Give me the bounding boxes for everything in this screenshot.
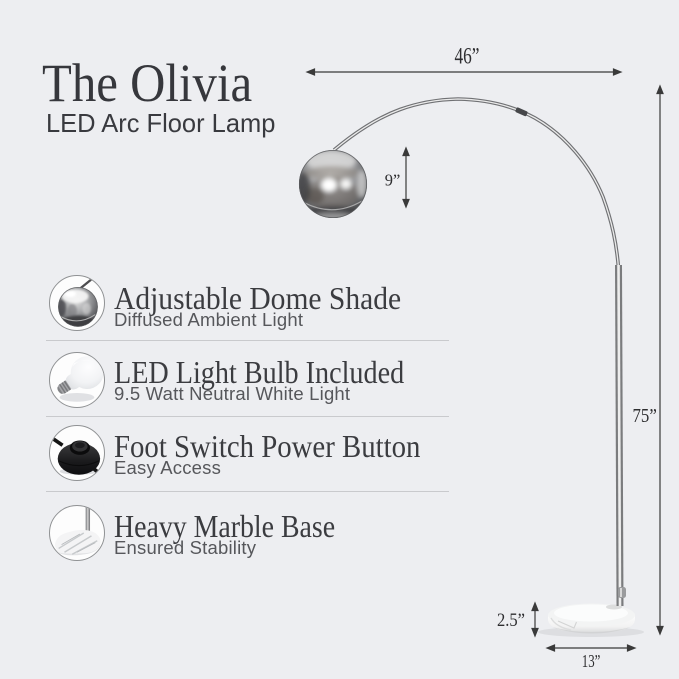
svg-text:75”: 75” (633, 406, 657, 427)
svg-text:9”: 9” (385, 170, 401, 189)
svg-text:13”: 13” (582, 651, 601, 671)
svg-text:46”: 46” (455, 44, 480, 69)
svg-text:2.5”: 2.5” (497, 610, 525, 631)
